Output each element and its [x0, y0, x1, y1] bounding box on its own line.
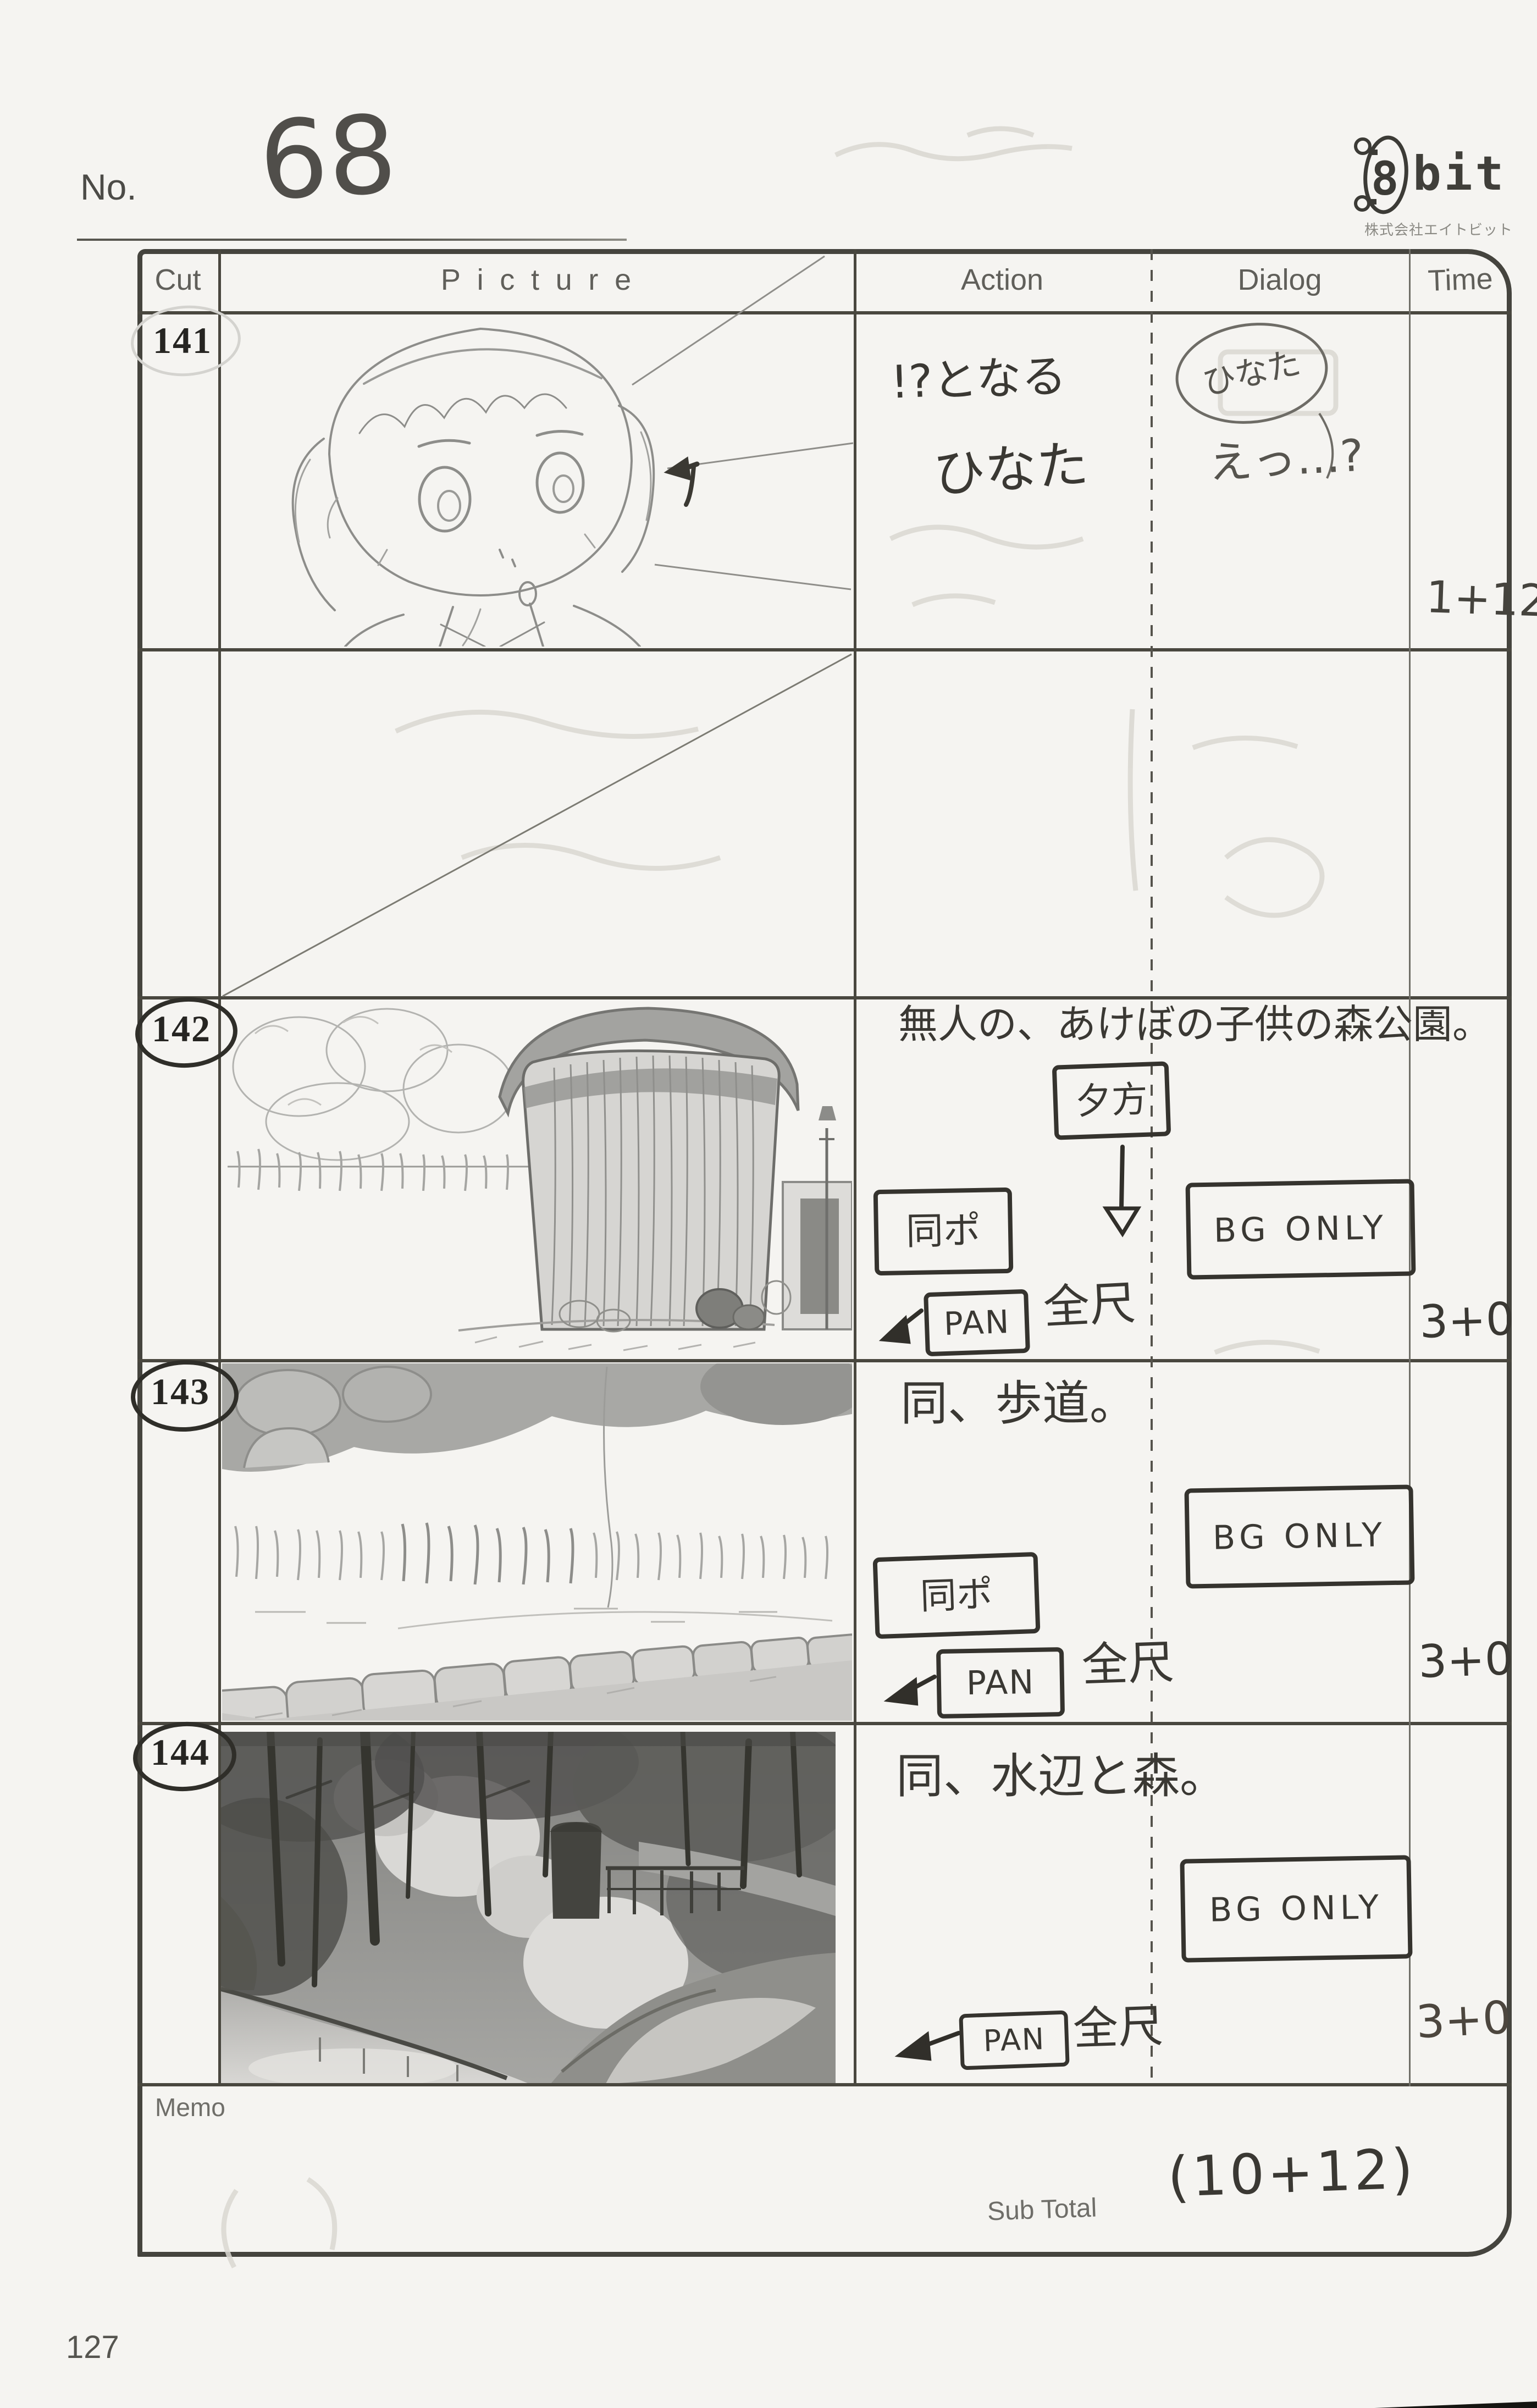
row-line-1: [137, 648, 1512, 651]
cut-141-number: 141: [144, 319, 221, 362]
cut-144-time-value: 3+0: [1415, 1995, 1512, 2047]
logo-company-name: 株式会社エイトビット: [1364, 219, 1513, 239]
cut-141-action-line2: ひなた: [932, 438, 1090, 502]
cut-144-pan: PAN: [983, 2024, 1046, 2057]
cut-143-same-position: 同ポ: [920, 1575, 993, 1616]
row-line-4: [137, 1722, 1512, 1725]
page-number: 127: [66, 2329, 119, 2366]
cut-column-line: [218, 249, 221, 2086]
storyboard-page: No. 68 8 bit 株式会社エイトビット Cut Picture Acti…: [0, 0, 1537, 2408]
sheet-no-label: No.: [80, 166, 137, 208]
sheet-no-underline: [77, 239, 627, 241]
cut-141-time-value: 1+12: [1425, 574, 1537, 625]
cut-142-same-position-box: 同ポ: [873, 1188, 1014, 1275]
cut-144-bg-only: BG ONLY: [1209, 1890, 1384, 1928]
cut-142-pan: PAN: [943, 1305, 1010, 1340]
action-dialog-dashed-line: [1151, 249, 1153, 2086]
cut-142-scene-note: 無人の、あけぼの子供の森公園。: [898, 1004, 1492, 1046]
cut-142-number: 142: [143, 1007, 220, 1051]
cut-141-dialog-text: えっ…?: [1207, 433, 1364, 487]
cut-141-dialog-speaker: ひなた: [1199, 345, 1304, 401]
row-line-2: [137, 996, 1512, 999]
row-line-3: [137, 1359, 1512, 1362]
cut-142-time-value: 3+0: [1419, 1296, 1516, 1346]
cut-144-pan-box: PAN: [959, 2011, 1069, 2070]
logo-wordmark: bit: [1413, 146, 1506, 201]
cut-142-pan-box: PAN: [924, 1289, 1030, 1357]
picture-column-line: [854, 249, 856, 2086]
cut-144-bg-only-box: BG ONLY: [1180, 1855, 1412, 1962]
cut-143-number: 143: [142, 1370, 219, 1413]
cut-142-time-of-day: 夕方: [1075, 1080, 1148, 1121]
cut-142-pan-extent: 全尺: [1042, 1279, 1137, 1332]
cut-144-scene-note: 同、水辺と森。: [896, 1752, 1227, 1801]
logo-mark: 8: [1371, 152, 1399, 206]
cut-142-bg-only-box: BG ONLY: [1185, 1179, 1416, 1279]
sheet-no-value: 68: [257, 99, 400, 219]
cut-141-action-line1: !?となる: [890, 353, 1068, 406]
cut-143-pan-box: PAN: [936, 1647, 1065, 1719]
scan-edge-shadow: [1374, 2400, 1537, 2408]
sub-total-value: (10+12): [1166, 2140, 1417, 2206]
cut-143-pan-extent: 全尺: [1081, 1638, 1175, 1689]
cut-143-scene-note: 同、歩道。: [900, 1379, 1137, 1428]
cut-143-bg-only: BG ONLY: [1213, 1518, 1387, 1556]
cut-143-time-value: 3+0: [1418, 1636, 1514, 1686]
cut-143-bg-only-box: BG ONLY: [1184, 1484, 1414, 1588]
header-bottom-line: [137, 311, 1512, 314]
cut-142-same-position: 同ポ: [905, 1211, 981, 1252]
time-column-line: [1409, 249, 1411, 2086]
cut-142-time-of-day-box: 夕方: [1052, 1061, 1171, 1140]
memo-top-line: [137, 2083, 1512, 2086]
cut-143-same-position-box: 同ポ: [873, 1552, 1041, 1639]
cut-142-bg-only: BG ONLY: [1214, 1211, 1388, 1249]
cut-144-pan-extent: 全尺: [1072, 2003, 1164, 2053]
cut-144-number: 144: [142, 1731, 219, 1774]
cut-143-pan: PAN: [966, 1665, 1035, 1700]
